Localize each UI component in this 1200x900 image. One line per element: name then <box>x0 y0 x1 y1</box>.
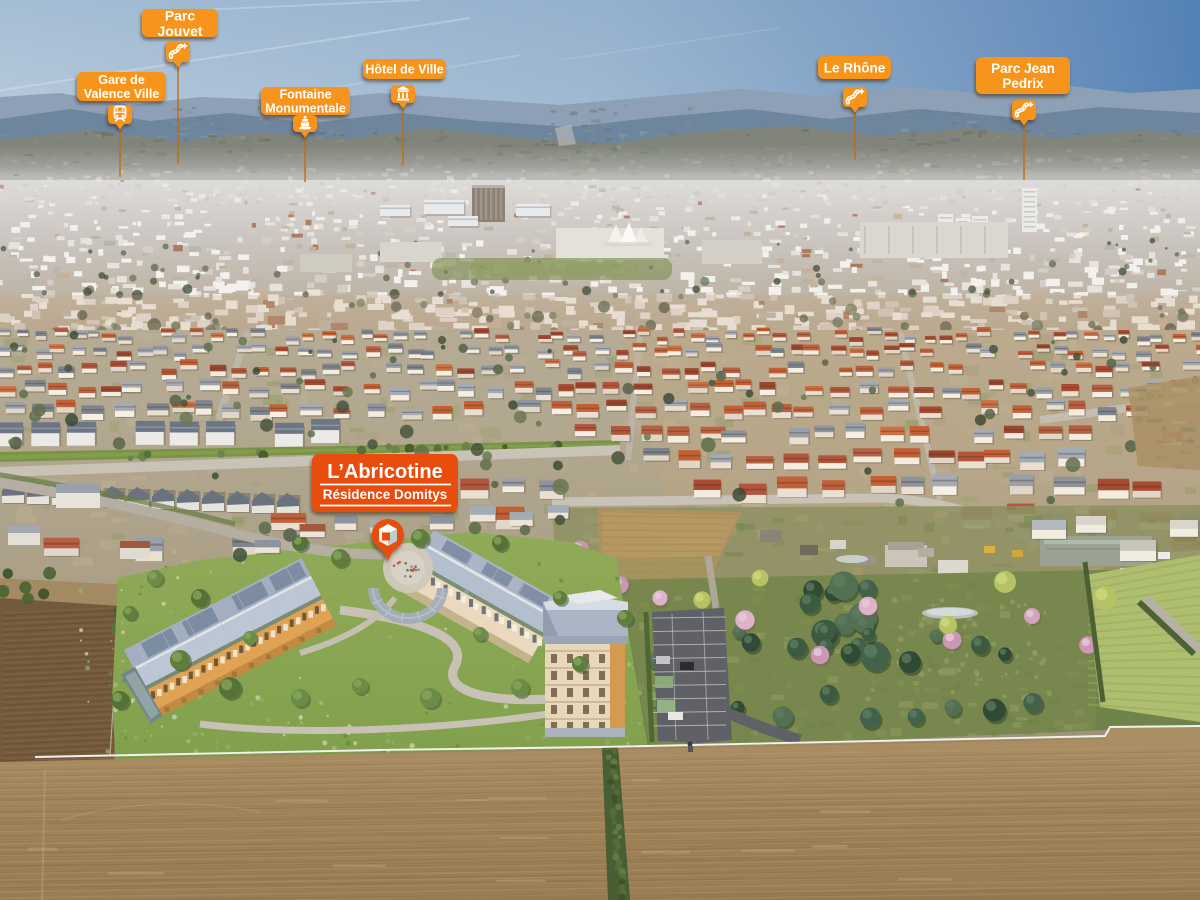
svg-text:Monumentale: Monumentale <box>265 102 346 116</box>
svg-text:L’Abricotine: L’Abricotine <box>327 461 443 483</box>
svg-text:Hôtel de Ville: Hôtel de Ville <box>365 63 443 77</box>
svg-text:Gare de: Gare de <box>98 73 145 87</box>
svg-text:Fontaine: Fontaine <box>279 88 331 102</box>
svg-text:Pedrix: Pedrix <box>1002 76 1044 91</box>
svg-text:Parc: Parc <box>165 7 196 23</box>
svg-text:Jouvet: Jouvet <box>157 23 202 39</box>
svg-text:Résidence Domitys: Résidence Domitys <box>323 487 448 502</box>
svg-text:Parc Jean: Parc Jean <box>991 61 1055 76</box>
svg-text:Valence Ville: Valence Ville <box>84 87 160 101</box>
svg-text:Le Rhône: Le Rhône <box>824 60 886 75</box>
